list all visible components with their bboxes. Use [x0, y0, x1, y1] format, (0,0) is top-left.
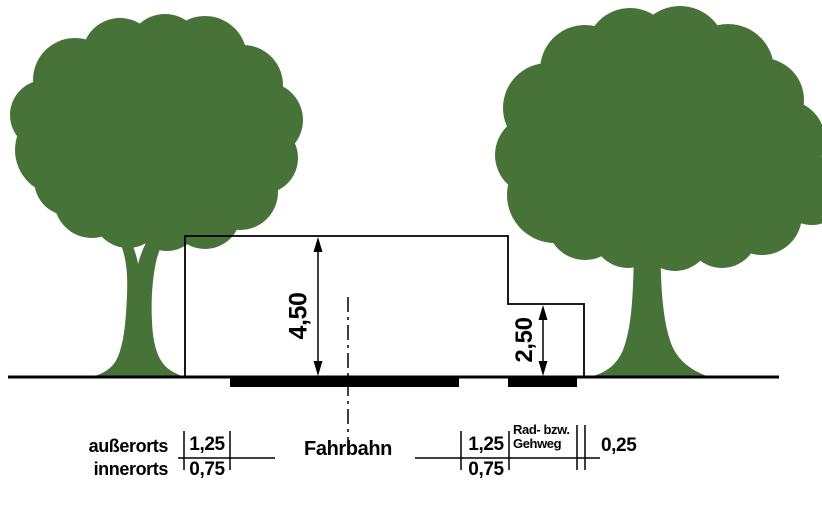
radweg-label-line2: Gehweg	[513, 437, 561, 451]
left-offset-value-inside: 0,75	[189, 459, 224, 480]
arrowhead-450-up	[314, 237, 323, 252]
filled-shapes	[230, 237, 577, 387]
right-tree-crown	[495, 6, 822, 271]
arrowhead-450-down	[314, 361, 323, 376]
radweg-label-line1: Rad- bzw.	[513, 423, 570, 437]
clearance-height-path-label: 2,50	[511, 317, 539, 362]
edge-offset-value: 0,25	[601, 435, 636, 456]
left-tree	[10, 14, 303, 378]
fahrbahn-label: Fahrbahn	[304, 438, 392, 460]
arrowhead-250-up	[539, 305, 548, 320]
right-offset-value-inside: 0,75	[468, 459, 503, 480]
path-bar	[508, 376, 577, 387]
ausserorts-label: außerorts	[40, 436, 168, 456]
left-tree-crown	[10, 14, 303, 251]
innerorts-label: innerorts	[40, 459, 168, 479]
right-tree	[495, 6, 822, 378]
clearance-height-road-label: 4,50	[285, 292, 314, 339]
arrowhead-250-down	[539, 361, 548, 376]
right-offset-value-outside: 1,25	[468, 434, 503, 455]
roadway-bar	[230, 376, 459, 387]
left-offset-value-outside: 1,25	[189, 434, 224, 455]
tree-clearance-diagram: 4,50 2,50 außerorts innerorts 1,25 0,75 …	[0, 0, 822, 530]
